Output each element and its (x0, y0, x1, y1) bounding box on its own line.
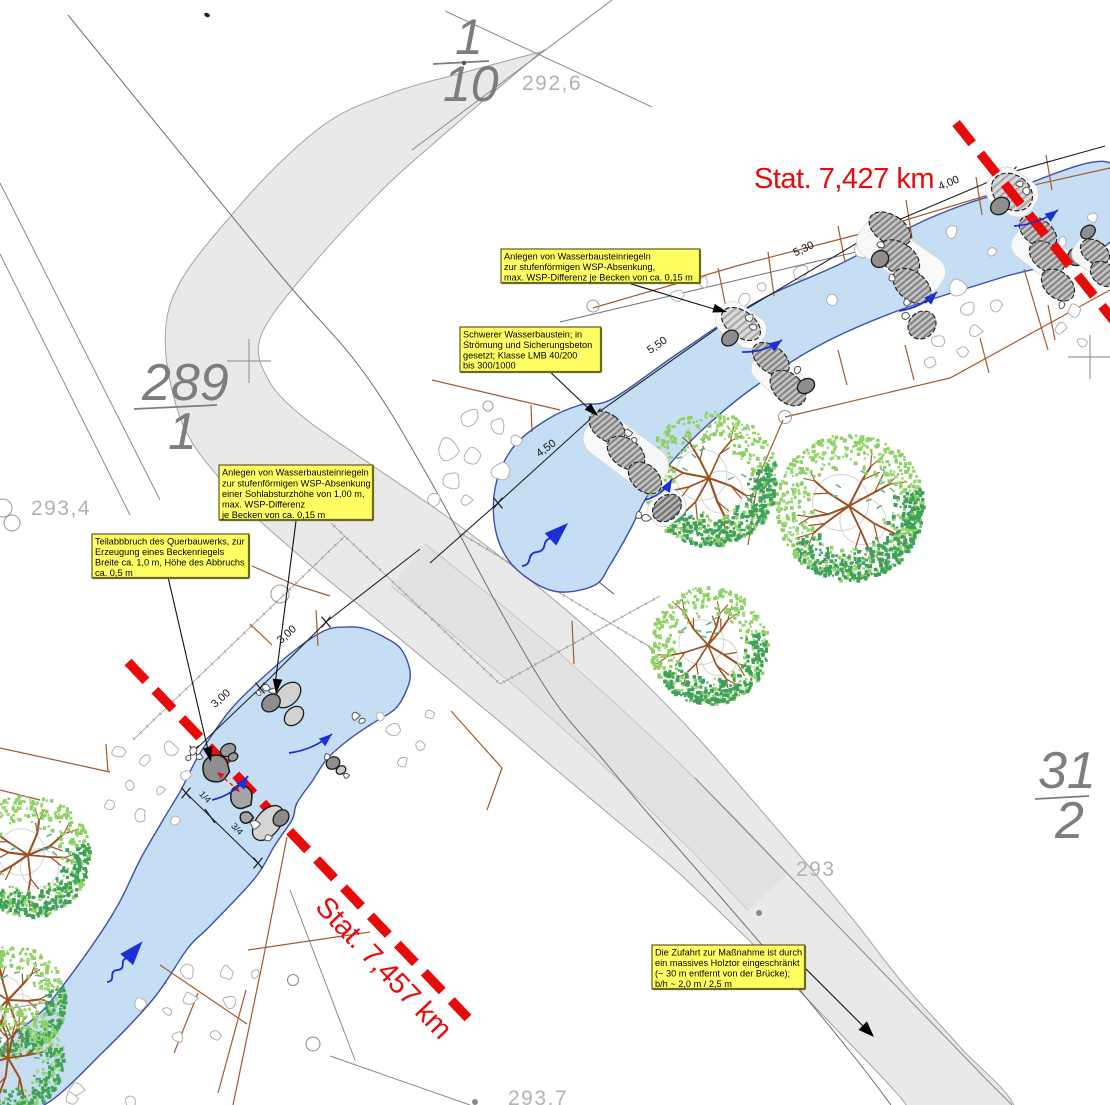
svg-text:Teilabbbruch des Querbauwerks,: Teilabbbruch des Querbauwerks, zur (95, 537, 245, 547)
svg-text:(~ 30 m entfernt von der Brück: (~ 30 m entfernt von der Brücke); (655, 969, 790, 979)
svg-text:Erzeugung eines Beckenriegels: Erzeugung eines Beckenriegels (95, 547, 225, 557)
svg-text:zur stufenförmigen WSP-Absenku: zur stufenförmigen WSP-Absenkung, (504, 262, 655, 272)
svg-text:Schwerer Wasserbaustein; in: Schwerer Wasserbaustein; in (463, 330, 582, 340)
svg-text:bis 300/1000: bis 300/1000 (463, 361, 516, 371)
svg-text:2: 2 (1054, 792, 1084, 850)
svg-text:1: 1 (168, 403, 197, 461)
svg-text:b/h ~ 2,0 m / 2,5 m: b/h ~ 2,0 m / 2,5 m (655, 979, 732, 989)
svg-text:293,7: 293,7 (508, 1087, 568, 1105)
svg-text:Die Zufahrt zur Maßnahme ist d: Die Zufahrt zur Maßnahme ist durch (655, 948, 802, 958)
svg-text:max. WSP-Differenz je Becken v: max. WSP-Differenz je Becken von ca. 0,1… (504, 272, 693, 282)
svg-text:Strömung und Sicherungsbeton: Strömung und Sicherungsbeton (463, 340, 592, 350)
svg-text:292,6: 292,6 (522, 72, 582, 95)
svg-text:gesetzt; Klasse LMB 40/200: gesetzt; Klasse LMB 40/200 (463, 350, 577, 360)
svg-text:10: 10 (443, 56, 499, 112)
svg-text:293: 293 (796, 858, 836, 881)
svg-text:max. WSP-Differenz: max. WSP-Differenz (222, 500, 305, 510)
svg-text:einer Sohlabsturzhöhe von 1,00: einer Sohlabsturzhöhe von 1,00 m, (222, 489, 365, 499)
svg-text:je Becken von ca. 0,15 m: je Becken von ca. 0,15 m (221, 510, 326, 520)
svg-text:Stat. 7,427 km: Stat. 7,427 km (754, 163, 934, 195)
svg-text:zur stufenförmigen WSP-Absenku: zur stufenförmigen WSP-Absenkung (222, 478, 371, 488)
svg-text:ca. 0,5 m: ca. 0,5 m (95, 568, 133, 578)
svg-text:Anlegen von Wasserbausteinrieg: Anlegen von Wasserbausteinriegeln (504, 252, 651, 262)
svg-text:293,4: 293,4 (31, 497, 91, 520)
svg-text:Anlegen von Wasserbausteinrieg: Anlegen von Wasserbausteinriegeln (222, 468, 369, 478)
svg-text:Breite ca. 1,0 m, Höhe des Abb: Breite ca. 1,0 m, Höhe des Abbruchs (95, 558, 245, 568)
svg-text:ein massives Holztor eingeschr: ein massives Holztor eingeschränkt (655, 958, 800, 968)
